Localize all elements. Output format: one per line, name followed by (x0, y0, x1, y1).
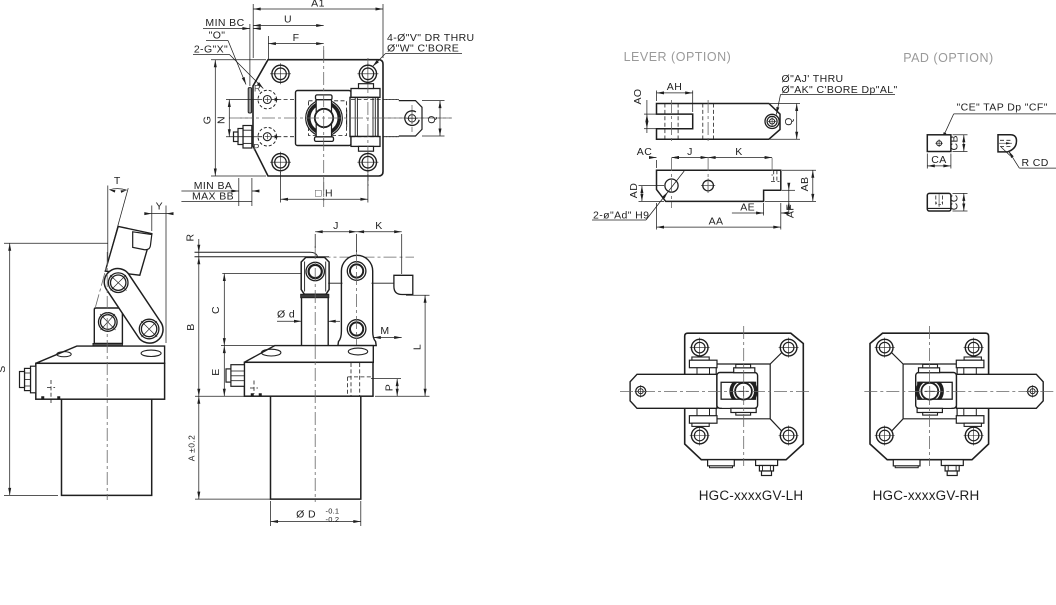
svg-text:N: N (216, 116, 228, 124)
svg-text:AE: AE (740, 202, 755, 214)
svg-text:CA: CA (931, 154, 946, 166)
svg-text:B: B (185, 323, 197, 330)
svg-text:S: S (0, 365, 8, 372)
svg-text:R CD: R CD (1022, 157, 1049, 169)
svg-text:AC: AC (637, 146, 652, 158)
svg-text:AA: AA (709, 215, 724, 227)
svg-text:G: G (202, 116, 214, 125)
svg-text:CB: CB (949, 135, 961, 150)
svg-text:2-G"X": 2-G"X" (194, 44, 228, 56)
svg-text:□ H: □ H (315, 188, 333, 200)
svg-text:J: J (333, 220, 339, 232)
svg-text:Ø d: Ø d (277, 309, 295, 321)
svg-text:R: R (184, 233, 196, 241)
svg-text:AD: AD (628, 183, 640, 198)
svg-text:P: P (383, 384, 395, 391)
svg-text:K: K (735, 146, 742, 158)
svg-text:J: J (687, 146, 693, 158)
svg-text:L: L (411, 344, 423, 350)
svg-text:MIN BC: MIN BC (205, 17, 244, 29)
svg-text:Y: Y (156, 201, 163, 213)
svg-text:C: C (210, 306, 222, 314)
svg-text:AO: AO (632, 89, 644, 105)
svg-text:A ±0.2: A ±0.2 (186, 435, 196, 461)
svg-text:E: E (210, 368, 222, 375)
svg-text:U: U (284, 14, 292, 26)
svg-text:"CE" TAP Dp "CF": "CE" TAP Dp "CF" (957, 102, 1048, 114)
svg-text:Q: Q (783, 117, 795, 126)
svg-text:MAX BB: MAX BB (192, 191, 234, 203)
svg-text:CC: CC (949, 194, 961, 210)
svg-text:-0.2: -0.2 (326, 515, 340, 524)
svg-text:"O": "O" (209, 30, 226, 42)
svg-text:T: T (114, 175, 121, 187)
svg-text:Q: Q (426, 115, 438, 124)
svg-text:M: M (380, 325, 389, 337)
svg-text:AF: AF (785, 204, 797, 218)
svg-text:LEVER (OPTION): LEVER (OPTION) (624, 50, 732, 64)
svg-text:Ø D: Ø D (296, 509, 316, 521)
svg-text:HGC-xxxxGV-RH: HGC-xxxxGV-RH (873, 488, 980, 503)
svg-text:K: K (375, 220, 382, 232)
svg-text:F: F (293, 32, 300, 44)
svg-text:P: P (253, 143, 260, 154)
svg-text:A1: A1 (311, 0, 325, 10)
svg-text:HGC-xxxxGV-LH: HGC-xxxxGV-LH (699, 488, 804, 503)
svg-text:Ø"W" C'BORE: Ø"W" C'BORE (387, 43, 459, 55)
svg-text:PAD (OPTION): PAD (OPTION) (903, 51, 994, 65)
svg-text:AH: AH (667, 81, 682, 93)
svg-text:AB: AB (799, 177, 811, 192)
